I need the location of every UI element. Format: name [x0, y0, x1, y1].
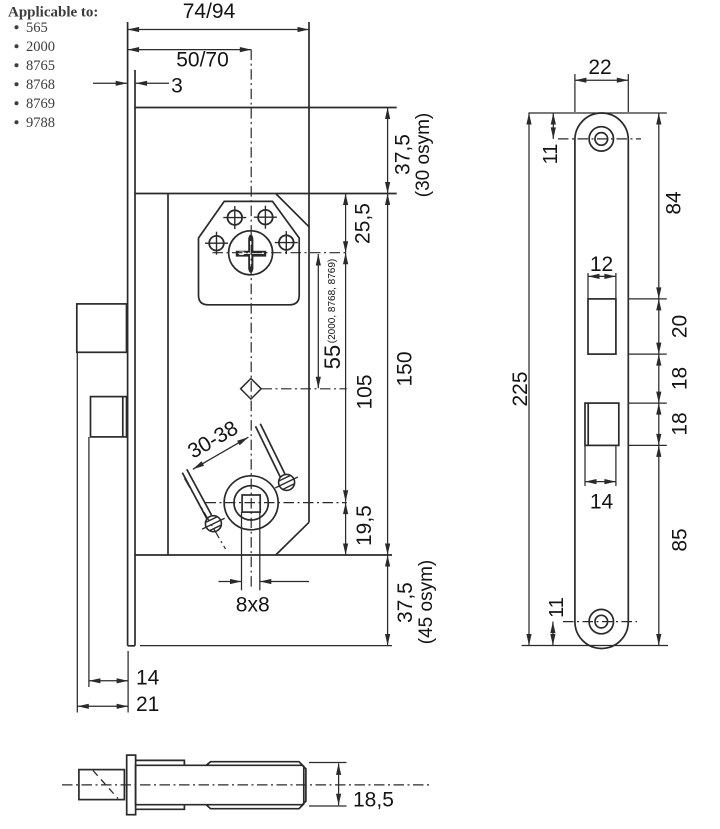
svg-text:12: 12 — [590, 253, 613, 276]
svg-text:3: 3 — [171, 75, 183, 98]
svg-text:20: 20 — [669, 315, 692, 338]
svg-text:150: 150 — [394, 351, 417, 386]
svg-text:85: 85 — [669, 528, 692, 551]
svg-text:14: 14 — [136, 667, 160, 690]
svg-text:9788: 9788 — [26, 115, 55, 131]
svg-text:25,5: 25,5 — [352, 203, 375, 244]
svg-text:30-38: 30-38 — [184, 417, 242, 464]
svg-text:21: 21 — [136, 693, 159, 716]
svg-text:8765: 8765 — [26, 58, 55, 74]
svg-text:18: 18 — [669, 412, 692, 435]
svg-text:11: 11 — [540, 144, 562, 165]
svg-text:(30 osym): (30 osym) — [413, 113, 434, 197]
svg-text:37,5: 37,5 — [394, 582, 417, 623]
svg-text:11: 11 — [546, 597, 568, 618]
svg-text:8x8: 8x8 — [236, 594, 270, 617]
svg-text:19,5: 19,5 — [353, 505, 376, 546]
svg-text:18: 18 — [669, 367, 692, 390]
svg-text:8769: 8769 — [26, 96, 55, 112]
svg-text:18,5: 18,5 — [353, 789, 394, 812]
svg-text:74/94: 74/94 — [183, 0, 236, 23]
svg-text:(45 osym): (45 osym) — [416, 560, 437, 644]
svg-text:37,5: 37,5 — [392, 134, 415, 175]
svg-text:(2000, 8768, 8769): (2000, 8768, 8769) — [327, 259, 338, 344]
svg-text:84: 84 — [663, 191, 686, 215]
svg-text:105: 105 — [354, 374, 377, 409]
svg-text:14: 14 — [590, 491, 614, 514]
svg-text:565: 565 — [26, 20, 48, 36]
svg-text:225: 225 — [509, 371, 532, 406]
svg-text:22: 22 — [588, 56, 611, 79]
svg-text:Applicable to:: Applicable to: — [8, 5, 98, 21]
svg-text:8768: 8768 — [26, 77, 55, 93]
svg-text:50/70: 50/70 — [176, 49, 229, 72]
svg-text:55: 55 — [320, 345, 345, 369]
svg-text:2000: 2000 — [26, 39, 55, 55]
